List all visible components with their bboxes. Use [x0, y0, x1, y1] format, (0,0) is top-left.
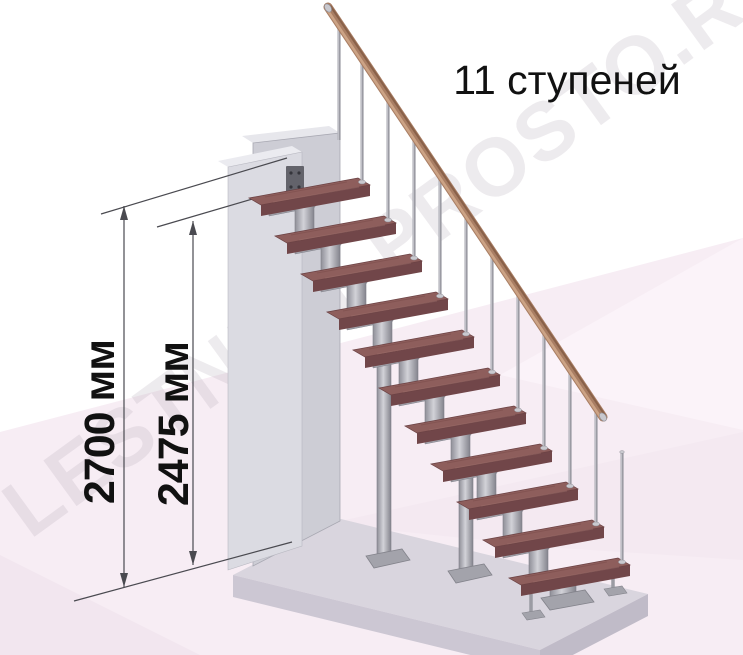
- baluster-mount: [618, 560, 625, 564]
- support-column: [459, 474, 473, 574]
- baluster-cap: [620, 451, 624, 454]
- baluster-mount: [592, 522, 599, 526]
- baluster-mount: [410, 256, 417, 260]
- mount-hole: [297, 185, 300, 188]
- dimension-label-2700: 2700 мм: [76, 340, 124, 504]
- baluster-mount: [384, 218, 391, 222]
- mount-hole: [289, 185, 292, 188]
- staircase-diagram: LESTNICY-PROSTO.RU 2700 мм 2475 мм: [0, 0, 743, 655]
- baluster-mount: [436, 294, 443, 298]
- page-title: 11 ступеней: [453, 57, 681, 103]
- baluster-mount: [514, 408, 521, 412]
- staircase-diagram-page: LESTNICY-PROSTO.RU 2700 мм 2475 мм: [0, 0, 743, 655]
- dimension-label-2475: 2475 мм: [150, 342, 198, 506]
- mount-hole: [289, 171, 292, 174]
- baluster-mount: [488, 370, 495, 374]
- baluster-mount: [566, 484, 573, 488]
- landing-post: [338, 22, 339, 140]
- support-column: [377, 352, 391, 558]
- baluster-mount: [358, 180, 365, 184]
- arrowhead: [189, 221, 197, 235]
- baluster-mount: [462, 332, 469, 336]
- mount-hole: [297, 171, 300, 174]
- baluster-mount: [540, 446, 547, 450]
